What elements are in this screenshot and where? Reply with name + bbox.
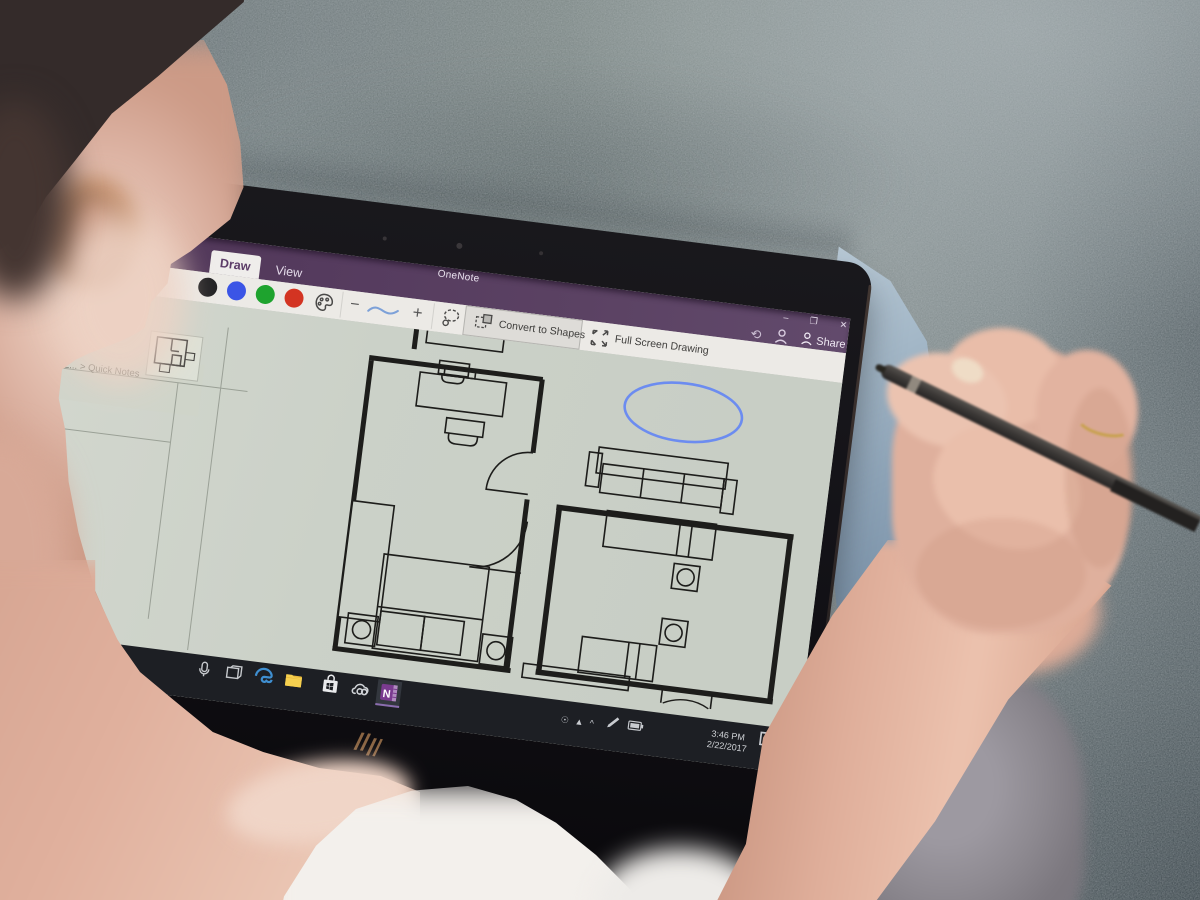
svg-text:N: N xyxy=(382,688,391,701)
